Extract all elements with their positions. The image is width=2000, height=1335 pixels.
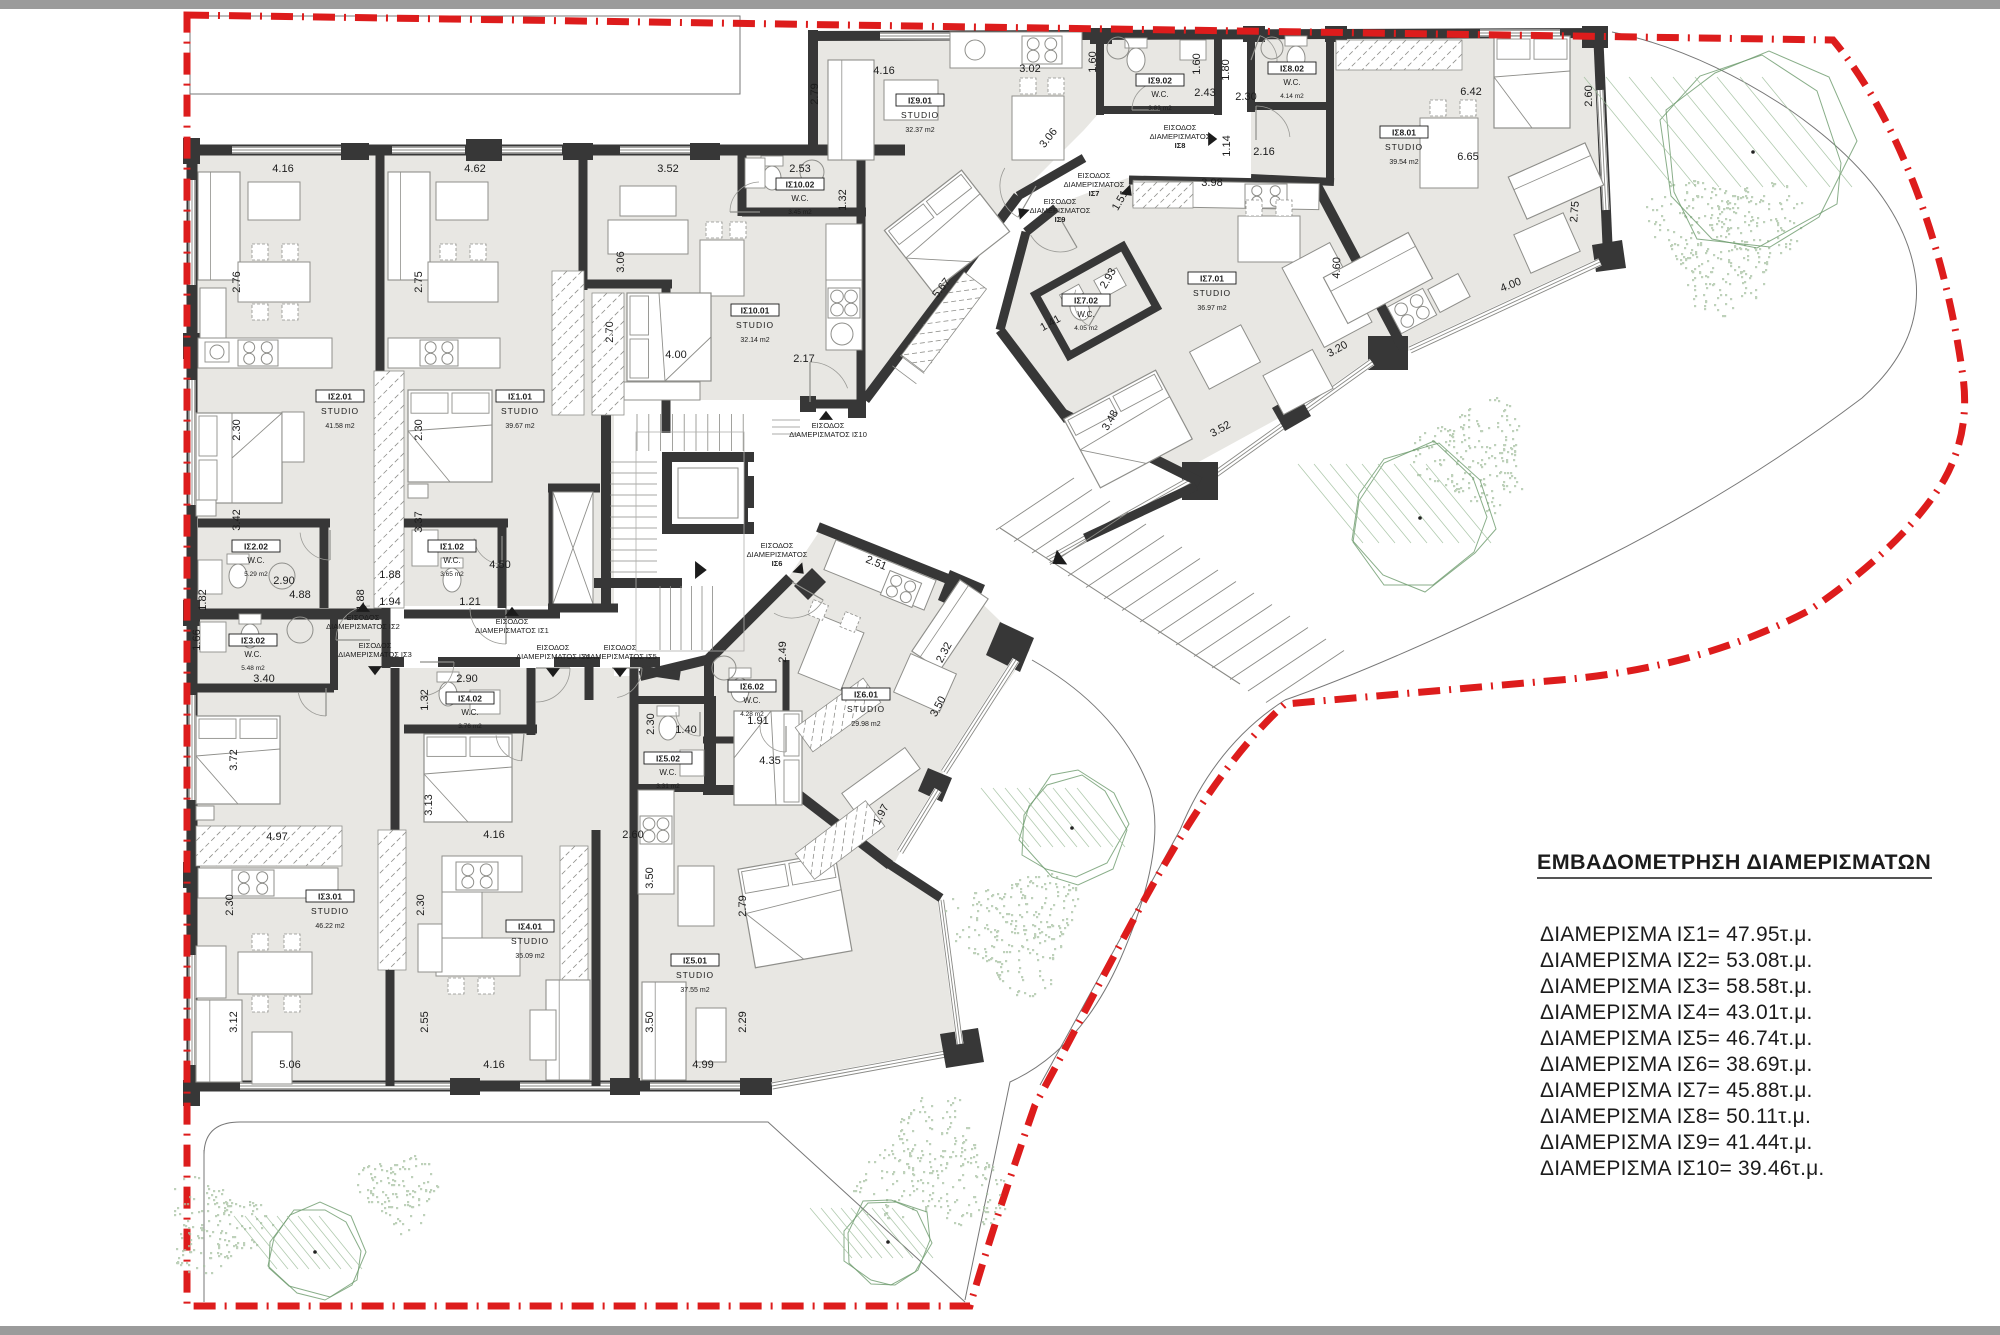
svg-text:46.22 m2: 46.22 m2 [315,923,344,930]
svg-text:3.02: 3.02 [1019,63,1040,75]
svg-text:6.42: 6.42 [1460,86,1481,98]
svg-text:4.16: 4.16 [483,829,504,841]
svg-text:1.40: 1.40 [675,724,696,736]
svg-text:1.14: 1.14 [1221,135,1233,156]
svg-text:4.16: 4.16 [873,65,894,77]
svg-text:2.90: 2.90 [456,673,477,685]
svg-text:3.50: 3.50 [644,1011,656,1032]
svg-text:STUDIO: STUDIO [1385,142,1423,152]
svg-text:39.67 m2: 39.67 m2 [505,423,534,430]
svg-text:2.17: 2.17 [793,353,814,365]
svg-text:3.13: 3.13 [423,794,435,815]
svg-text:2.75: 2.75 [413,271,425,292]
svg-text:1.94: 1.94 [379,596,400,608]
svg-text:ΔΙΑΜΕΡΙΣΜΑ ΙΣ9= 41.44τ.μ.: ΔΙΑΜΕΡΙΣΜΑ ΙΣ9= 41.44τ.μ. [1540,1131,1813,1154]
svg-text:ΙΣ8: ΙΣ8 [1175,141,1186,150]
svg-text:4.05 m2: 4.05 m2 [1074,325,1098,332]
svg-text:ΕΙΣΟΔΟΣ: ΕΙΣΟΔΟΣ [1164,123,1197,132]
svg-text:STUDIO: STUDIO [901,110,939,120]
svg-text:ΙΣ10.02: ΙΣ10.02 [786,180,815,190]
svg-text:2.29: 2.29 [737,1011,749,1032]
svg-text:STUDIO: STUDIO [736,320,774,330]
svg-text:ΔΙΑΜΕΡΙΣΜΑ ΙΣ8= 50.11τ.μ.: ΔΙΑΜΕΡΙΣΜΑ ΙΣ8= 50.11τ.μ. [1540,1105,1811,1128]
svg-text:1.82: 1.82 [197,589,209,610]
svg-text:W.C.: W.C. [743,696,760,705]
svg-text:2.53: 2.53 [789,163,810,175]
svg-text:W.C.: W.C. [244,650,261,659]
svg-text:4.28 m2: 4.28 m2 [740,711,764,718]
svg-text:ΙΣ9.01: ΙΣ9.01 [908,96,932,106]
svg-text:2.60: 2.60 [622,829,643,841]
svg-text:STUDIO: STUDIO [501,406,539,416]
svg-text:5.06: 5.06 [279,1059,300,1071]
svg-text:ΕΙΣΟΔΟΣ: ΕΙΣΟΔΟΣ [1078,171,1111,180]
svg-text:ΔΙΑΜΕΡΙΣΜΑ ΙΣ4= 43.01τ.μ.: ΔΙΑΜΕΡΙΣΜΑ ΙΣ4= 43.01τ.μ. [1540,1001,1813,1024]
svg-text:3.76 m2: 3.76 m2 [458,723,482,730]
svg-text:2.30: 2.30 [224,894,236,915]
svg-text:39.54 m2: 39.54 m2 [1389,159,1418,166]
svg-text:ΙΣ3.01: ΙΣ3.01 [318,892,342,902]
svg-text:ΕΙΣΟΔΟΣ: ΕΙΣΟΔΟΣ [537,643,570,652]
svg-text:3.52: 3.52 [657,163,678,175]
svg-text:ΙΣ1.01: ΙΣ1.01 [508,392,532,402]
svg-text:32.14 m2: 32.14 m2 [740,337,769,344]
svg-text:4.35: 4.35 [759,755,780,767]
svg-text:W.C.: W.C. [247,556,264,565]
svg-text:3.12: 3.12 [228,1011,240,1032]
svg-text:5.29 m2: 5.29 m2 [244,571,268,578]
svg-text:W.C.: W.C. [1077,310,1094,319]
svg-text:ΙΣ6.01: ΙΣ6.01 [854,690,878,700]
svg-text:STUDIO: STUDIO [847,704,885,714]
svg-text:2.90: 2.90 [273,575,294,587]
svg-text:W.C.: W.C. [1151,90,1168,99]
svg-text:ΙΣ3.02: ΙΣ3.02 [241,636,265,646]
svg-text:ΕΙΣΟΔΟΣ: ΕΙΣΟΔΟΣ [604,643,637,652]
svg-text:ΔΙΑΜΕΡΙΣΜΑΤΟΣ: ΔΙΑΜΕΡΙΣΜΑΤΟΣ [1030,206,1091,215]
svg-text:2.30: 2.30 [231,419,243,440]
svg-text:ΕΙΣΟΔΟΣ: ΕΙΣΟΔΟΣ [496,617,529,626]
svg-text:ΕΙΣΟΔΟΣ: ΕΙΣΟΔΟΣ [761,541,794,550]
svg-text:ΙΣ4.02: ΙΣ4.02 [458,694,482,704]
svg-text:ΔΙΑΜΕΡΙΣΜΑ ΙΣ2= 53.08τ.μ.: ΔΙΑΜΕΡΙΣΜΑ ΙΣ2= 53.08τ.μ. [1540,949,1813,972]
svg-text:1.88: 1.88 [379,569,400,581]
svg-text:ΔΙΑΜΕΡΙΣΜΑΤΟΣ ΙΣ10: ΔΙΑΜΕΡΙΣΜΑΤΟΣ ΙΣ10 [789,430,867,439]
svg-text:4.50: 4.50 [489,559,510,571]
svg-text:4.14 m2: 4.14 m2 [1280,93,1304,100]
svg-text:ΕΙΣΟΔΟΣ: ΕΙΣΟΔΟΣ [812,421,845,430]
svg-text:ΙΣ8.02: ΙΣ8.02 [1280,64,1304,74]
svg-text:W.C.: W.C. [1283,78,1300,87]
svg-text:1.32: 1.32 [419,689,431,710]
svg-text:3.72: 3.72 [228,749,240,770]
svg-text:ΕΜΒΑΔΟΜΕΤΡΗΣΗ ΔΙΑΜΕΡΙΣΜΑΤΩΝ: ΕΜΒΑΔΟΜΕΤΡΗΣΗ ΔΙΑΜΕΡΙΣΜΑΤΩΝ [1537,850,1931,874]
svg-text:3.83 m2: 3.83 m2 [1148,105,1172,112]
svg-text:3.98: 3.98 [1201,177,1222,189]
svg-text:2.55: 2.55 [419,1011,431,1032]
svg-text:2.16: 2.16 [1253,146,1274,158]
svg-text:ΙΣ9: ΙΣ9 [1055,215,1066,224]
svg-text:ΔΙΑΜΕΡΙΣΜΑΤΟΣ: ΔΙΑΜΕΡΙΣΜΑΤΟΣ [1064,180,1125,189]
svg-text:1.80: 1.80 [1220,59,1232,80]
svg-text:ΙΣ6: ΙΣ6 [772,559,783,568]
svg-text:1.32: 1.32 [837,189,849,210]
svg-text:ΔΙΑΜΕΡΙΣΜΑΤΟΣ: ΔΙΑΜΕΡΙΣΜΑΤΟΣ [747,550,808,559]
svg-text:2.30: 2.30 [415,894,427,915]
svg-text:5.48 m2: 5.48 m2 [241,665,265,672]
svg-text:ΔΙΑΜΕΡΙΣΜΑΤΟΣ ΙΣ3: ΔΙΑΜΕΡΙΣΜΑΤΟΣ ΙΣ3 [338,650,412,659]
svg-text:2.70: 2.70 [604,321,616,342]
svg-text:W.C.: W.C. [659,768,676,777]
svg-text:1.21: 1.21 [459,596,480,608]
svg-text:ΔΙΑΜΕΡΙΣΜΑΤΟΣ: ΔΙΑΜΕΡΙΣΜΑΤΟΣ [1150,132,1211,141]
svg-text:ΙΣ2.02: ΙΣ2.02 [244,542,268,552]
svg-text:3.06: 3.06 [615,251,627,272]
svg-text:3.45 m2: 3.45 m2 [788,209,812,216]
svg-text:ΕΙΣΟΔΟΣ: ΕΙΣΟΔΟΣ [1044,197,1077,206]
svg-text:ΙΣ5.01: ΙΣ5.01 [683,956,707,966]
svg-text:ΙΣ7.01: ΙΣ7.01 [1200,274,1224,284]
svg-text:37.55 m2: 37.55 m2 [680,987,709,994]
svg-text:2.30: 2.30 [1235,91,1256,103]
svg-text:ΙΣ9.02: ΙΣ9.02 [1148,76,1172,86]
svg-text:4.00: 4.00 [665,349,686,361]
svg-text:41.58 m2: 41.58 m2 [325,423,354,430]
svg-text:ΔΙΑΜΕΡΙΣΜΑΤΟΣ ΙΣ2: ΔΙΑΜΕΡΙΣΜΑΤΟΣ ΙΣ2 [326,622,400,631]
svg-text:STUDIO: STUDIO [511,936,549,946]
svg-text:35.09 m2: 35.09 m2 [515,953,544,960]
svg-text:3.42: 3.42 [231,509,243,530]
svg-text:ΕΙΣΟΔΟΣ: ΕΙΣΟΔΟΣ [347,613,380,622]
svg-text:2.30: 2.30 [645,713,657,734]
svg-text:ΔΙΑΜΕΡΙΣΜΑ ΙΣ6= 38.69τ.μ.: ΔΙΑΜΕΡΙΣΜΑ ΙΣ6= 38.69τ.μ. [1540,1053,1813,1076]
svg-text:2.79: 2.79 [737,895,749,916]
svg-text:ΙΣ1.02: ΙΣ1.02 [440,542,464,552]
svg-text:ΔΙΑΜΕΡΙΣΜΑ ΙΣ1= 47.95τ.μ.: ΔΙΑΜΕΡΙΣΜΑ ΙΣ1= 47.95τ.μ. [1540,923,1813,946]
svg-text:4.60: 4.60 [1331,257,1344,279]
svg-text:ΙΣ7.02: ΙΣ7.02 [1074,296,1098,306]
svg-text:3.50: 3.50 [644,867,656,888]
svg-text:ΔΙΑΜΕΡΙΣΜΑ ΙΣ3= 58.58τ.μ.: ΔΙΑΜΕΡΙΣΜΑ ΙΣ3= 58.58τ.μ. [1540,975,1813,998]
svg-text:1.60: 1.60 [1087,51,1099,72]
svg-text:36.97 m2: 36.97 m2 [1197,305,1226,312]
svg-text:ΔΙΑΜΕΡΙΣΜΑ ΙΣ10= 39.46τ.μ.: ΔΙΑΜΕΡΙΣΜΑ ΙΣ10= 39.46τ.μ. [1540,1157,1824,1180]
svg-text:6.65: 6.65 [1457,151,1478,163]
svg-text:ΔΙΑΜΕΡΙΣΜΑ ΙΣ7= 45.88τ.μ.: ΔΙΑΜΕΡΙΣΜΑ ΙΣ7= 45.88τ.μ. [1540,1079,1813,1102]
svg-text:2.75: 2.75 [1568,201,1582,223]
svg-text:ΙΣ4.01: ΙΣ4.01 [518,922,542,932]
svg-text:29.98 m2: 29.98 m2 [851,721,880,728]
svg-text:W.C.: W.C. [791,194,808,203]
svg-text:2.79: 2.79 [809,83,821,104]
svg-text:ΔΙΑΜΕΡΙΣΜΑΤΟΣ ΙΣ4: ΔΙΑΜΕΡΙΣΜΑΤΟΣ ΙΣ4 [516,652,590,661]
svg-text:ΔΙΑΜΕΡΙΣΜΑΤΟΣ ΙΣ5: ΔΙΑΜΕΡΙΣΜΑΤΟΣ ΙΣ5 [583,652,657,661]
svg-text:ΙΣ6.02: ΙΣ6.02 [740,682,764,692]
svg-text:1.60: 1.60 [1191,53,1203,74]
svg-text:ΙΣ8.01: ΙΣ8.01 [1392,128,1416,138]
svg-text:ΙΣ7: ΙΣ7 [1089,189,1100,198]
svg-text:2.76: 2.76 [231,271,243,292]
svg-text:W.C.: W.C. [443,556,460,565]
svg-text:STUDIO: STUDIO [676,970,714,980]
svg-text:STUDIO: STUDIO [1193,288,1231,298]
svg-text:3.31 m2: 3.31 m2 [656,783,680,790]
svg-text:4.16: 4.16 [272,163,293,175]
svg-text:ΙΣ5.02: ΙΣ5.02 [656,754,680,764]
svg-text:ΙΣ2.01: ΙΣ2.01 [328,392,352,402]
svg-text:STUDIO: STUDIO [321,406,359,416]
svg-text:4.88: 4.88 [289,589,310,601]
svg-text:3.65 m2: 3.65 m2 [440,571,464,578]
svg-text:2.43: 2.43 [1194,87,1215,99]
svg-text:ΕΙΣΟΔΟΣ: ΕΙΣΟΔΟΣ [359,641,392,650]
svg-text:1.66: 1.66 [191,629,203,650]
svg-text:2.30: 2.30 [413,419,425,440]
svg-text:ΔΙΑΜΕΡΙΣΜΑΤΟΣ ΙΣ1: ΔΙΑΜΕΡΙΣΜΑΤΟΣ ΙΣ1 [475,626,549,635]
svg-text:3.37: 3.37 [413,511,425,532]
svg-text:4.62: 4.62 [464,163,485,175]
svg-text:ΙΣ10.01: ΙΣ10.01 [741,306,770,316]
svg-text:4.97: 4.97 [266,831,287,843]
svg-text:STUDIO: STUDIO [311,906,349,916]
svg-text:2.60: 2.60 [1583,85,1595,106]
svg-text:2.49: 2.49 [777,641,789,662]
svg-text:4.16: 4.16 [483,1059,504,1071]
svg-text:32.37 m2: 32.37 m2 [905,127,934,134]
svg-text:ΔΙΑΜΕΡΙΣΜΑ ΙΣ5= 46.74τ.μ.: ΔΙΑΜΕΡΙΣΜΑ ΙΣ5= 46.74τ.μ. [1540,1027,1813,1050]
svg-text:4.99: 4.99 [692,1059,713,1071]
svg-text:3.40: 3.40 [253,673,274,685]
svg-text:W.C.: W.C. [461,708,478,717]
